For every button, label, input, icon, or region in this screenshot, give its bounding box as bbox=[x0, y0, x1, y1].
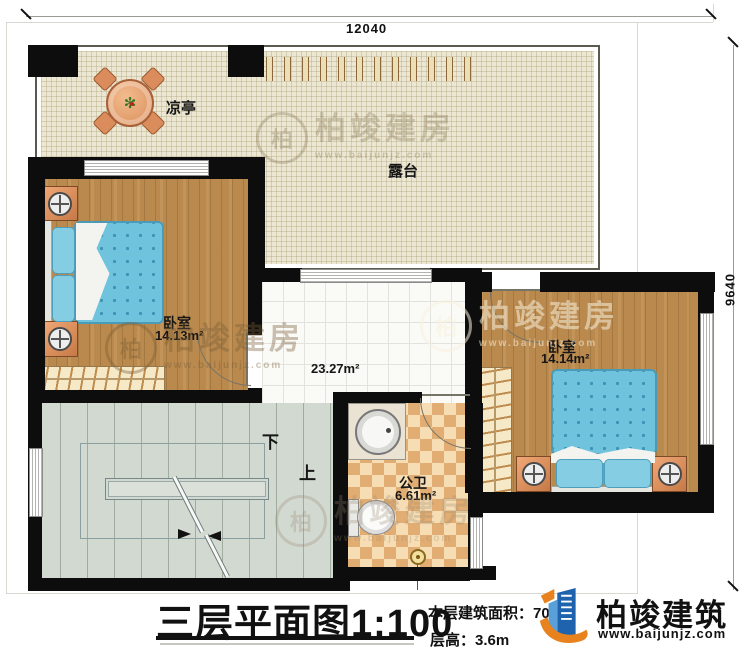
door-leaf bbox=[492, 289, 540, 291]
nightstand bbox=[516, 456, 551, 492]
bed-right bbox=[551, 369, 657, 455]
wall-segment bbox=[480, 492, 714, 513]
nightstand bbox=[652, 456, 687, 492]
floor-plan: 12040 9640 ✻ bbox=[0, 0, 750, 656]
bathroom-area: 6.61m² bbox=[395, 488, 436, 503]
dimension-tick bbox=[705, 8, 716, 19]
dimension-right-value: 9640 bbox=[723, 268, 738, 312]
wall-segment bbox=[248, 268, 302, 282]
lamp-icon bbox=[48, 327, 72, 351]
dimension-tick bbox=[20, 8, 31, 19]
toilet-bowl bbox=[357, 500, 395, 535]
window bbox=[29, 448, 43, 517]
frame-extension-line bbox=[636, 22, 713, 23]
terrace-label: 露台 bbox=[388, 160, 418, 181]
wardrobe bbox=[480, 367, 512, 494]
column bbox=[228, 45, 264, 77]
frame-extension-line bbox=[713, 4, 714, 22]
bed-headboard bbox=[44, 220, 52, 325]
bedroom-left-area: 14.13m² bbox=[155, 328, 203, 343]
lamp-icon bbox=[48, 192, 72, 216]
dimension-line-top bbox=[26, 16, 713, 17]
wall-segment bbox=[248, 157, 265, 270]
plant-icon: ✻ bbox=[124, 96, 137, 111]
hall-area: 23.27m² bbox=[311, 361, 359, 376]
wall-segment bbox=[248, 388, 262, 403]
stair-direction-arrow bbox=[178, 529, 191, 539]
title-underline bbox=[156, 636, 414, 640]
lamp-icon bbox=[522, 462, 546, 486]
window bbox=[84, 160, 209, 176]
column bbox=[28, 45, 78, 77]
window bbox=[300, 269, 432, 283]
pillow bbox=[52, 275, 75, 322]
floor-drain-icon bbox=[410, 549, 426, 565]
stairs-down-label: 下 bbox=[262, 428, 279, 453]
wall-segment bbox=[28, 578, 350, 591]
wall-segment bbox=[348, 567, 470, 581]
title-underline-2 bbox=[160, 643, 414, 645]
hangers bbox=[481, 368, 511, 493]
wall-segment bbox=[465, 272, 482, 493]
pillow bbox=[604, 459, 651, 488]
door-leaf bbox=[422, 394, 470, 396]
terrace-railing-balusters bbox=[266, 57, 478, 81]
pillow bbox=[556, 459, 603, 488]
door-leaf bbox=[246, 332, 248, 385]
window bbox=[470, 517, 483, 569]
floor-area-text: 本层建筑面积：70 bbox=[428, 602, 550, 623]
brand-logo-icon bbox=[536, 585, 594, 654]
window bbox=[700, 313, 714, 445]
stair-direction-arrow bbox=[208, 531, 221, 541]
brand-website: www.baijunjz.com bbox=[598, 626, 726, 641]
hall-floor bbox=[262, 280, 468, 403]
pillow bbox=[52, 227, 75, 274]
bedroom-right-area: 14.14m² bbox=[541, 351, 589, 366]
lamp-icon bbox=[658, 462, 682, 486]
stairs-up-label: 上 bbox=[299, 459, 316, 484]
wall-segment bbox=[540, 272, 715, 292]
wall-segment bbox=[28, 157, 45, 403]
wall-segment bbox=[333, 392, 348, 578]
sink-icon bbox=[355, 409, 401, 455]
faucet-icon bbox=[386, 428, 391, 433]
wall-segment bbox=[28, 390, 262, 403]
floor-height-text: 层高：3.6m bbox=[430, 629, 509, 650]
pavilion-table: ✻ bbox=[106, 79, 154, 127]
dimension-line-right bbox=[733, 45, 734, 590]
nightstand bbox=[42, 321, 78, 357]
dimension-top-value: 12040 bbox=[346, 21, 387, 36]
nightstand bbox=[42, 186, 78, 221]
pavilion-label: 凉亭 bbox=[166, 97, 196, 118]
